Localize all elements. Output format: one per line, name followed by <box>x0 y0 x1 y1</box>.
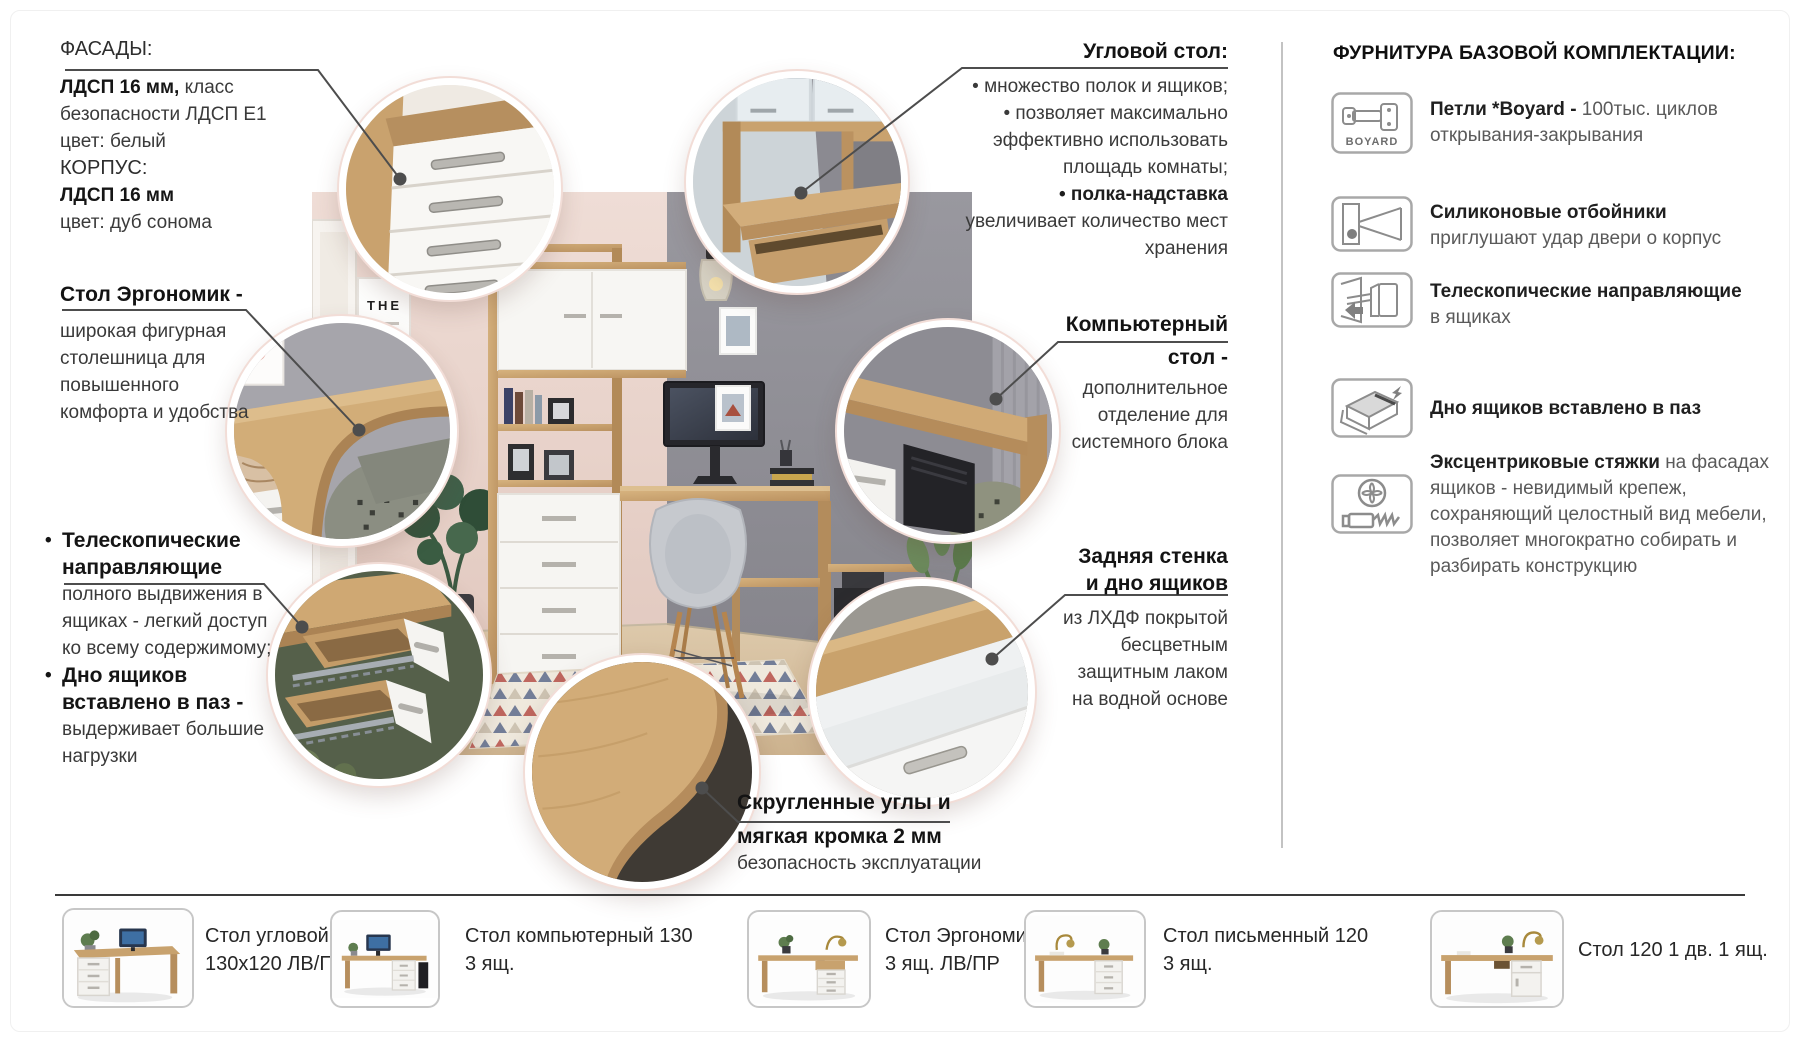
ergonomic-title: Стол Эргономик - <box>60 281 265 308</box>
silicone-bumper-icon <box>1331 196 1413 257</box>
corner-desk-bullet-2: • позволяет максимально эффективно испол… <box>948 100 1228 181</box>
corner-desk-title: Угловой стол: <box>948 38 1228 65</box>
hardware-item-hinges: Петли *Boyard - 100тыс. циклов открывани… <box>1430 97 1777 149</box>
hardware-item-bumpers: Силиконовые отбойникиприглушают удар две… <box>1430 200 1777 252</box>
inset-circle-drawer-bottom <box>809 579 1035 805</box>
rounded-body: безопасность эксплуатации <box>737 850 987 877</box>
furniture-infographic-page: THE <box>0 0 1800 1042</box>
callout-telescopic: • Телескопические направляющие полного в… <box>62 527 282 770</box>
computer-desk-title-1: Компьютерный <box>1028 311 1228 338</box>
telescopic-slides-icon <box>1331 272 1413 333</box>
svg-text:THE: THE <box>367 298 402 313</box>
korpus-color: цвет: дуб сонома <box>60 209 290 236</box>
inset-circle-drawer-fronts <box>339 78 561 300</box>
product-label-writing-120: Стол письменный 120 3 ящ. <box>1163 922 1368 978</box>
product-label-desk-120: Стол 120 1 дв. 1 ящ. <box>1578 936 1768 964</box>
ergonomic-body: широкая фигурная столешница для повышенн… <box>60 318 265 426</box>
bottom-divider <box>55 894 1745 896</box>
inset-circle-shelf-addon <box>686 71 908 293</box>
product-thumb-desk-120 <box>1430 910 1564 1008</box>
panel-divider <box>1281 42 1283 848</box>
back-wall-title-1: Задняя стенка <box>1053 543 1228 570</box>
back-wall-title-2: и дно ящиков <box>1053 570 1228 597</box>
facades-material: ЛДСП 16 мм, класс безопасности ЛДСП Е1 <box>60 74 290 128</box>
korpus-title: КОРПУС: <box>60 155 290 182</box>
corner-desk-bullet-3: • полка-надставка увеличивает количество… <box>948 181 1228 262</box>
product-thumb-ergonomik <box>747 910 871 1008</box>
telescopic-bullet-2: • Дно ящиков вставлено в паз - выдержива… <box>62 662 282 770</box>
rounded-title-2: мягкая кромка 2 мм <box>737 823 987 850</box>
telescopic-bullet-1: • Телескопические направляющие полного в… <box>62 527 282 662</box>
inset-circle-computer-desk <box>837 320 1059 542</box>
drawer-bottom-groove-icon <box>1331 378 1413 443</box>
hardware-item-eccentric: Эксцентриковые стяжки на фасадах ящиков … <box>1430 450 1777 580</box>
inset-circle-rounded-corner <box>525 655 759 889</box>
back-wall-body: из ЛХДФ покрытой бесцветным защитным лак… <box>1053 605 1228 713</box>
computer-desk-title-2: стол - <box>1028 344 1228 371</box>
product-thumb-computer-130 <box>330 910 440 1008</box>
product-label-corner-desk: Стол угловой 130х120 ЛВ/ПР <box>205 922 347 978</box>
korpus-material: ЛДСП 16 мм <box>60 182 290 209</box>
corner-desk-bullet-1: • множество полок и ящиков; <box>948 73 1228 100</box>
svg-text:BOYARD: BOYARD <box>1346 136 1399 148</box>
product-label-computer-130: Стол компьютерный 130 3 ящ. <box>465 922 693 978</box>
rounded-title-1: Скругленные углы и <box>737 789 987 816</box>
product-thumb-writing-120 <box>1024 910 1146 1008</box>
facades-color: цвет: белый <box>60 128 290 155</box>
product-label-ergonomik: Стол Эргономик 3 ящ. ЛВ/ПР <box>885 922 1036 978</box>
bullet-icon: • <box>45 527 52 554</box>
product-thumb-corner-desk <box>62 908 194 1008</box>
eccentric-cam-icon <box>1331 474 1413 539</box>
callout-back-wall: Задняя стенка и дно ящиков из ЛХДФ покры… <box>1053 543 1228 713</box>
bullet-icon: • <box>45 662 52 689</box>
hinge-boyard-icon: BOYARD <box>1331 92 1413 159</box>
callout-corner-desk: Угловой стол: • множество полок и ящиков… <box>948 38 1228 262</box>
computer-desk-body: дополнительное отделение для системного … <box>1028 375 1228 456</box>
hardware-panel-title: ФУРНИТУРА БАЗОВОЙ КОМПЛЕКТАЦИИ: <box>1333 42 1736 65</box>
callout-computer-desk: Компьютерный стол - дополнительное отдел… <box>1028 311 1228 456</box>
callout-rounded-corners: Скругленные углы и мягкая кромка 2 мм бе… <box>737 789 987 877</box>
callout-ergonomic: Стол Эргономик - широкая фигурная столеш… <box>60 281 265 426</box>
inset-circle-telescopic-slides <box>268 564 490 786</box>
hardware-item-drawer-bottom: Дно ящиков вставлено в паз <box>1430 396 1777 422</box>
callout-facades: ФАСАДЫ: ЛДСП 16 мм, класс безопасности Л… <box>60 36 290 236</box>
hardware-item-slides: Телескопические направляющиев ящиках <box>1430 279 1777 331</box>
facades-title: ФАСАДЫ: <box>60 36 290 62</box>
